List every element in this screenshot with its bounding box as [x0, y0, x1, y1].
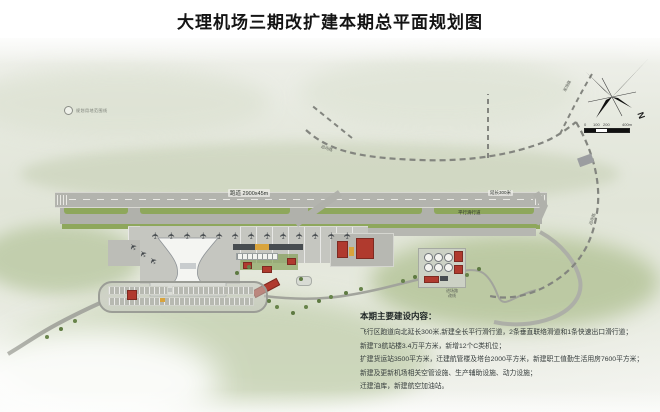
- aircraft-icon: ✈: [279, 232, 288, 240]
- scale-bar: 0 100 200 400m: [584, 122, 648, 133]
- office-building-orange-section: [255, 244, 269, 250]
- scale-bar-segments: [584, 128, 630, 133]
- runway-extension-label: 延长300米: [488, 190, 513, 196]
- fuel-tank: [434, 253, 443, 262]
- red-roof-building: [287, 258, 296, 265]
- depot-building: [424, 276, 439, 283]
- tree-dots: [0, 38, 2, 40]
- summary-line: 迁建油库，新建航空加油站。: [360, 380, 658, 394]
- boundary-road-top: [306, 122, 576, 160]
- t3-terminal-core: [180, 263, 196, 269]
- aircraft-icon: ✈: [263, 232, 272, 240]
- page-title: 大理机场三期改扩建本期总平面规划图: [0, 8, 660, 33]
- aircraft-icon: ✈: [231, 232, 240, 240]
- scale-segment-black: [585, 129, 596, 132]
- aircraft-icon: ✈: [167, 232, 176, 240]
- taxiway-label: 平行滑行道: [458, 210, 481, 216]
- rapid-exit-taxiway: [296, 193, 340, 224]
- approach-road-label-line2: 改线: [446, 293, 458, 298]
- aircraft-icon: ✈: [327, 232, 336, 240]
- support-buildings-row: [236, 253, 278, 260]
- depot-shed: [440, 276, 448, 281]
- construction-summary-box: 本期主要建设内容： 飞行区跑道向北延长300米,新建全长平行滑行道，2条垂直联络…: [360, 310, 658, 394]
- cargo-warehouse: [356, 238, 374, 259]
- north-label: N: [635, 111, 647, 121]
- depot-building: [454, 251, 463, 262]
- summary-line: 扩建货运站3500平方米，迁建航管楼及塔台2000平方米，新建职工值勤生活用房7…: [360, 353, 658, 367]
- parking-row: [108, 286, 168, 295]
- parking-row: [172, 286, 254, 295]
- boundary-spur-1: [310, 104, 352, 138]
- aircraft-icon: ✈: [151, 232, 160, 240]
- legend-circle-icon: [64, 106, 73, 115]
- aircraft-icon: ✈: [311, 232, 320, 240]
- aircraft-icon: ✈: [295, 232, 304, 240]
- red-roof-building: [243, 262, 252, 269]
- aircraft-icon: ✈: [199, 232, 208, 240]
- summary-line: 新建T3航站楼3.4万平方米，新增12个C类机位；: [360, 340, 658, 354]
- approach-road-label: 进场路 改线: [446, 288, 458, 298]
- aircraft-icon: ✈: [247, 232, 256, 240]
- red-roof-building: [262, 266, 272, 273]
- airport-master-plan-page: 大理机场三期改扩建本期总平面规划图: [0, 0, 660, 412]
- parking-area-building: [127, 290, 137, 300]
- scale-tick: 400m: [622, 122, 632, 127]
- depot-building: [454, 265, 463, 274]
- scale-segment-black: [607, 129, 629, 132]
- summary-line: 新建及更新机场相关空管设施、生产辅助设施、动力设施；: [360, 367, 658, 381]
- north-arrow-icon: [586, 58, 649, 118]
- fuel-tank: [434, 263, 443, 272]
- fuel-tank: [424, 263, 433, 272]
- summary-heading: 本期主要建设内容：: [360, 310, 658, 322]
- bus-vehicle: [160, 298, 165, 302]
- legend-text: 规划用地范围线: [76, 108, 108, 114]
- aircraft-icon: ✈: [343, 232, 352, 240]
- runway-end-loop-taxiway: [536, 193, 544, 224]
- scale-tick: 200: [603, 122, 610, 127]
- runway-label: 跑道 2900x45m: [228, 189, 270, 197]
- cargo-building: [337, 241, 348, 258]
- site-plan-map: N ✈✈✈✈✈✈✈✈✈: [0, 38, 660, 412]
- aircraft-icon: ✈: [183, 232, 192, 240]
- east-road-building: [577, 154, 594, 168]
- cargo-building-orange: [349, 247, 354, 256]
- fuel-tank: [424, 253, 433, 262]
- scale-tick: 0: [584, 122, 586, 127]
- fuel-tank: [444, 253, 453, 262]
- fuel-tank: [444, 263, 453, 272]
- summary-line: 飞行区跑道向北延长300米,新建全长平行滑行道，2条垂直联络滑道和1条快速出口滑…: [360, 326, 658, 340]
- scale-tick: 100: [593, 122, 600, 127]
- airport-access-road: [8, 303, 100, 354]
- aircraft-icon: ✈: [215, 232, 224, 240]
- legend-item: 规划用地范围线: [64, 106, 108, 115]
- round-plaza: [296, 276, 312, 286]
